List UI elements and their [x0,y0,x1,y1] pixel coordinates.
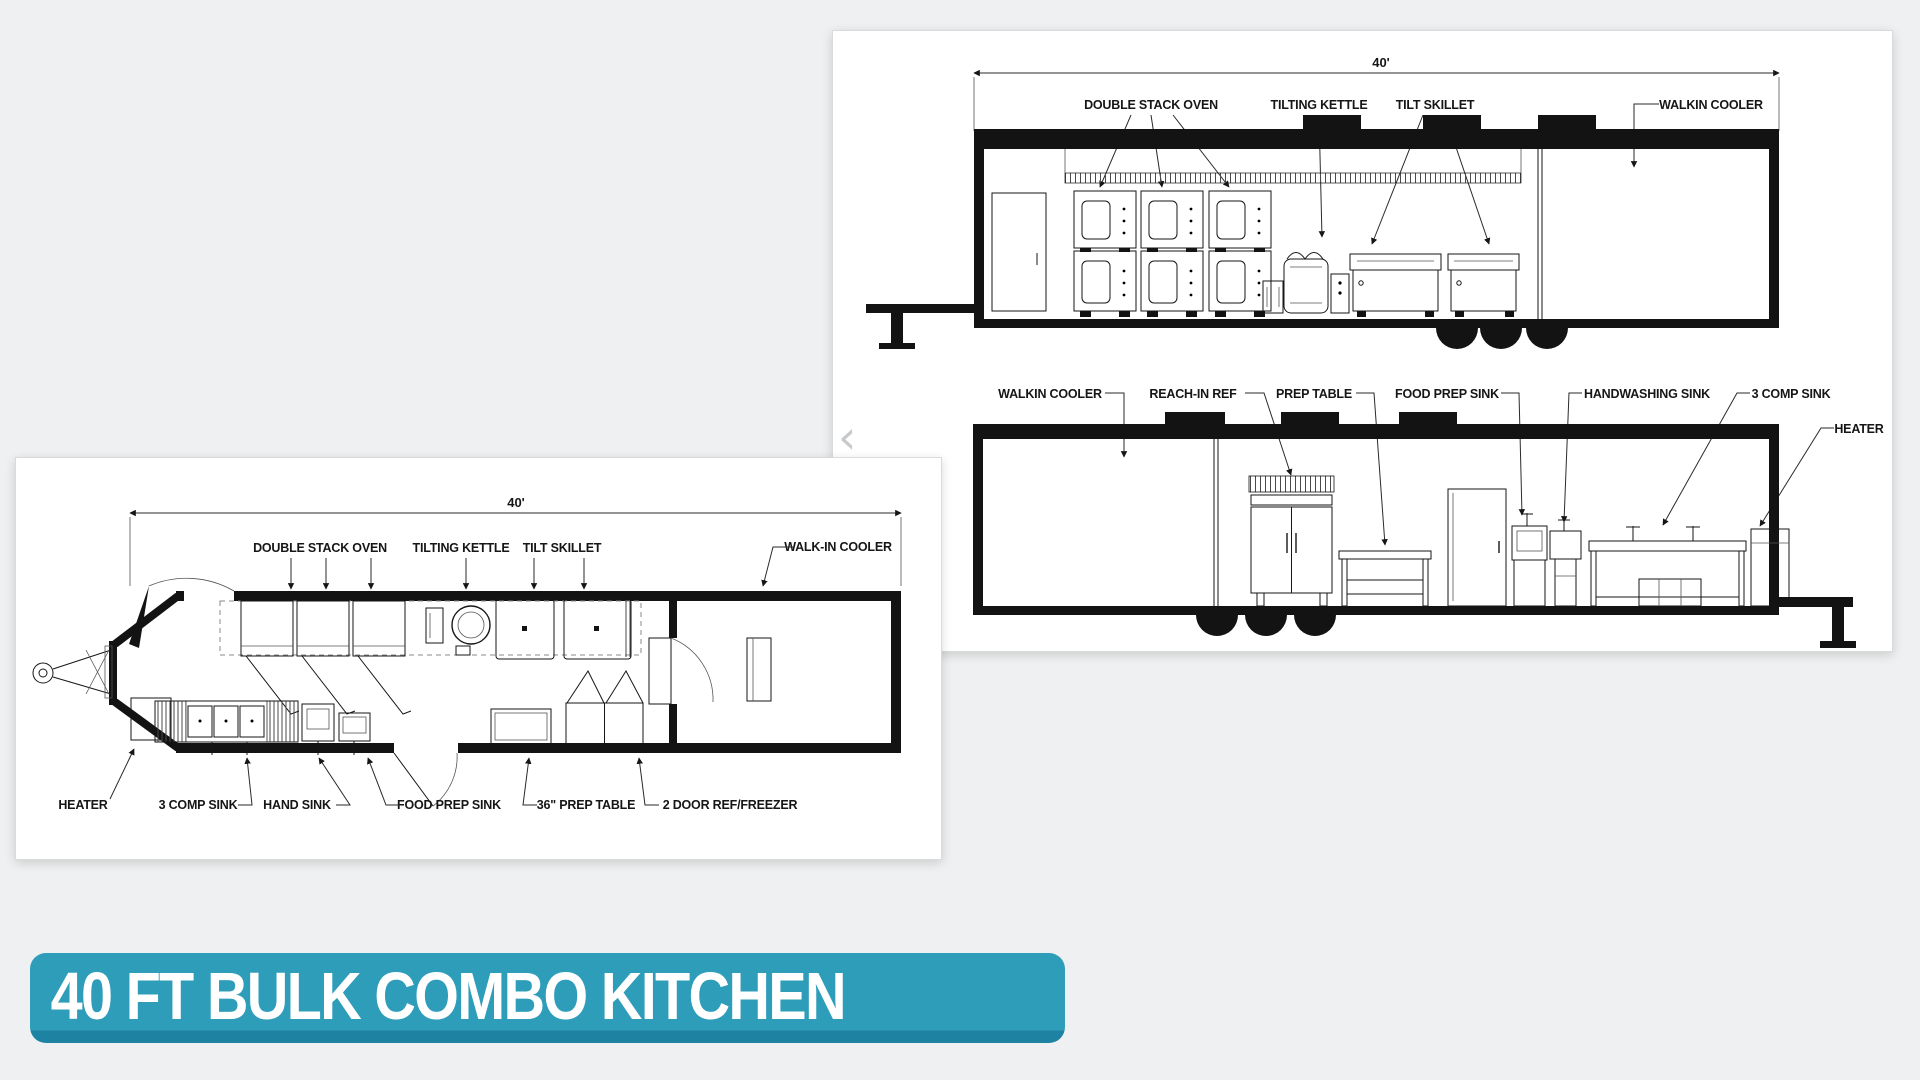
label-walk-in-cooler: WALK-IN COOLER [784,540,892,554]
title-banner: 40 FT BULK COMBO KITCHEN [30,953,1065,1043]
label-3-comp-sink: 3 COMP SINK [159,798,238,812]
label-double-stack-oven: DOUBLE STACK OVEN [1084,98,1218,112]
cooler-partition [1214,439,1218,606]
prep-table [1339,551,1431,606]
label-tilting-kettle: TILTING KETTLE [1271,98,1368,112]
trailer-rear-wall [973,424,983,615]
elevation-side-b: WALKIN COOLER REACH-IN REF PREP TABLE FO… [973,387,1884,648]
trailer-roof [974,129,1779,149]
roof-vent [1399,412,1457,426]
tilting-kettle-plan [426,606,490,655]
elevation-drawing: 40' DOUBLE STACK OVEN TILTING KETTLE TIL… [833,31,1892,651]
reach-in-refrigerator [1249,476,1334,606]
tilting-kettle [1263,253,1349,314]
trailer-rear-wall [1769,129,1779,319]
label-walkin-cooler: WALKIN COOLER [998,387,1102,401]
roof-vent [1165,412,1225,426]
front-entry-door [129,578,234,648]
tilt-skillets-plan [496,599,631,659]
hood-outline [220,601,641,655]
landing-jack [1779,597,1856,648]
roof-vent [1538,115,1596,131]
trailer-floor [974,319,1779,328]
food-prep-sink [1512,513,1547,606]
two-door-ref-freezer-plan [566,671,643,744]
label-3-comp-sink: 3 COMP SINK [1752,387,1831,401]
elevation-sheet: 40' DOUBLE STACK OVEN TILTING KETTLE TIL… [832,30,1893,652]
trailer-shell [113,591,901,753]
label-double-stack-oven: DOUBLE STACK OVEN [253,541,387,555]
label-walkin-cooler: WALKIN COOLER [1659,98,1763,112]
exhaust-hood [1065,149,1521,183]
label-tilt-skillet: TILT SKILLET [1396,98,1475,112]
dimension-label: 40' [1372,55,1390,70]
label-heater: HEATER [1834,422,1883,436]
wheels [1436,328,1568,349]
dimension-label: 40' [507,495,525,510]
roof-vent [1281,412,1339,426]
walk-in-cooler-plan [649,591,771,753]
label-36-prep-table: 36" PREP TABLE [537,798,636,812]
trailer-roof [973,424,1779,439]
label-food-prep-sink: FOOD PREP SINK [397,798,501,812]
double-stack-ovens-plan [241,601,411,714]
trailer-floor [973,606,1779,615]
floor-plan-drawing: 40' DOUBLE STACK OVEN TILTING KETTLE TIL… [16,458,941,859]
tilt-skillets [1350,254,1519,317]
roof-vent [1303,115,1361,131]
tall-cabinet [1448,489,1506,606]
page-title: 40 FT BULK COMBO KITCHEN [30,953,920,1041]
landing-jack [866,304,978,349]
label-tilt-skillet: TILT SKILLET [523,541,602,555]
label-prep-table: PREP TABLE [1276,387,1352,401]
handwashing-sink [1550,519,1581,606]
trailer-front-wall [1769,424,1779,615]
label-handwashing-sink: HANDWASHING SINK [1584,387,1710,401]
trailer-front-wall [974,129,984,319]
prep-table-36-plan [491,709,551,744]
label-reach-in-ref: REACH-IN REF [1149,387,1237,401]
label-heater: HEATER [58,798,107,812]
label-2-door-ref-freezer: 2 DOOR REF/FREEZER [663,798,798,812]
label-tilting-kettle: TILTING KETTLE [413,541,510,555]
trailer-tongue [33,646,112,698]
label-hand-sink: HAND SINK [263,798,331,812]
floor-plan-sheet: 40' DOUBLE STACK OVEN TILTING KETTLE TIL… [15,457,942,860]
elevation-side-a: 40' DOUBLE STACK OVEN TILTING KETTLE TIL… [866,55,1779,349]
roof-vent [1423,115,1481,131]
carousel-prev-icon[interactable]: ‹ [838,414,856,460]
label-food-prep-sink: FOOD PREP SINK [1395,387,1499,401]
page: 40' DOUBLE STACK OVEN TILTING KETTLE TIL… [0,0,1920,1080]
entry-door [992,193,1046,311]
three-comp-sink [1589,526,1746,606]
wheels [1196,615,1336,636]
double-stack-ovens [1074,191,1271,317]
cooler-partition [1538,149,1542,319]
